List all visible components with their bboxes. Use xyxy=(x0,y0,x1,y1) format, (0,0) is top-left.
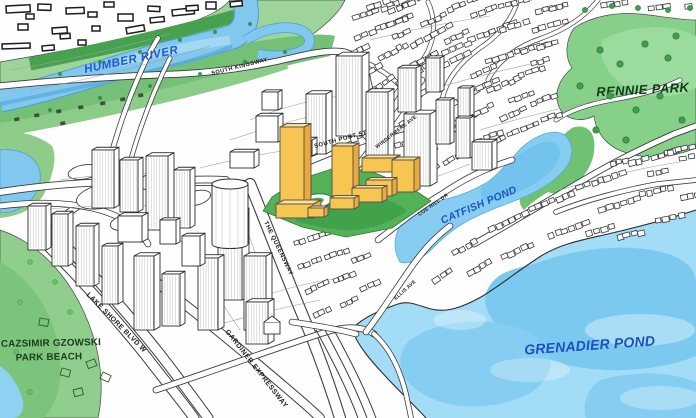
svg-text:CAZSIMIR GZOWSKI: CAZSIMIR GZOWSKI xyxy=(1,337,101,350)
svg-text:PARK BEACH: PARK BEACH xyxy=(16,351,83,363)
